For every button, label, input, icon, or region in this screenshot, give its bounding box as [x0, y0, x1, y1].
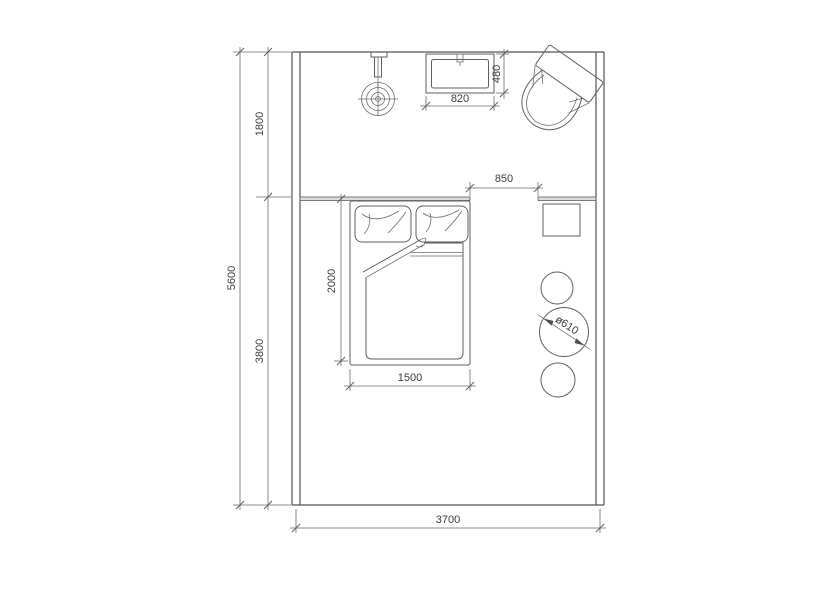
pillow-right	[416, 206, 468, 242]
double-bed	[350, 201, 470, 365]
dim-basin-width: 820	[420, 93, 500, 111]
toilet	[506, 44, 603, 143]
dim-bed-length: 2000	[326, 194, 348, 366]
dim-basin-width-label: 820	[451, 93, 469, 105]
floor-plan-canvas: ø610 850 820 480 2000	[0, 0, 837, 592]
wash-basin	[426, 54, 494, 93]
dim-opening: 850	[465, 173, 543, 196]
dim-overall-height-label: 5600	[226, 266, 238, 290]
dim-room-width: 3700	[290, 509, 606, 533]
duvet	[363, 238, 463, 359]
bedside-table	[543, 204, 580, 236]
dim-upper-zone-label: 1800	[254, 112, 266, 136]
dim-table-diameter: ø610	[538, 314, 590, 350]
dim-basin-depth-label: 480	[491, 65, 503, 83]
dim-room-width-label: 3700	[436, 514, 460, 526]
room-walls	[292, 52, 604, 505]
stool-top	[541, 272, 573, 304]
partition-wall	[300, 197, 596, 201]
dim-lower-zone-label: 3800	[254, 339, 266, 363]
stool-bottom	[541, 363, 575, 397]
floor-plan-drawing: ø610 850 820 480 2000	[0, 0, 837, 592]
dim-bed-width-label: 1500	[398, 372, 422, 384]
dim-bed-width: 1500	[344, 369, 476, 391]
pillow-left	[355, 206, 411, 242]
dim-opening-label: 850	[495, 173, 513, 185]
shower-head-symbol	[358, 52, 398, 116]
dim-left-chains: 5600 1800 3800	[226, 47, 291, 510]
dim-bed-length-label: 2000	[326, 269, 338, 293]
